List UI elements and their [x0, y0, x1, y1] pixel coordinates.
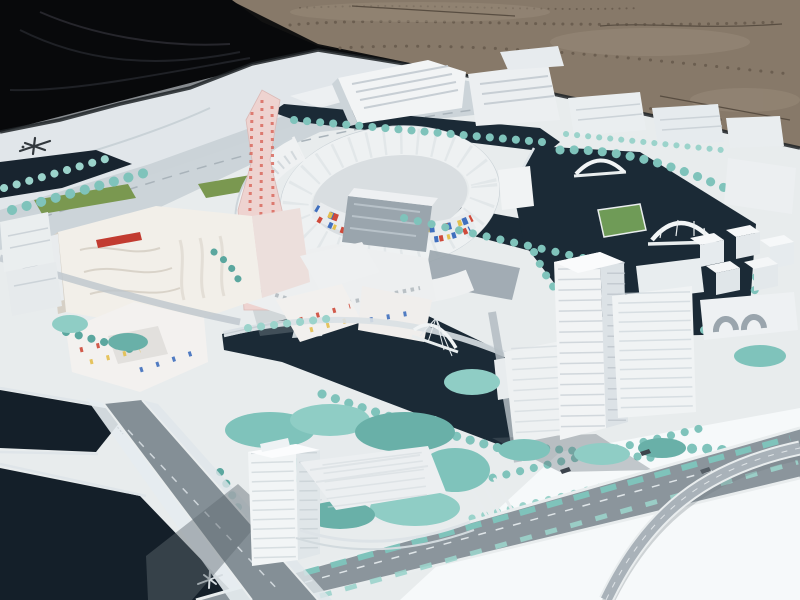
island-tower — [248, 438, 320, 566]
ring-east-tower — [498, 166, 534, 210]
architectural-model-photo: Outdoor photograph of a white urban mast… — [0, 0, 800, 600]
glass-office-block — [342, 188, 438, 252]
